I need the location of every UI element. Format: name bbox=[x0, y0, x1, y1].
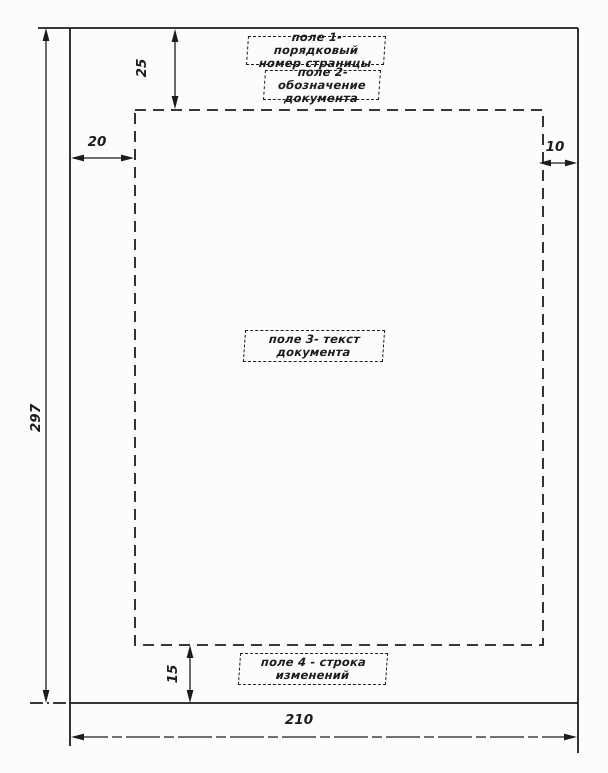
arrow-left-icon bbox=[71, 155, 84, 162]
field-label-line: документа bbox=[276, 346, 351, 359]
arrow-left-icon bbox=[539, 160, 551, 167]
arrow-right-icon bbox=[121, 155, 134, 162]
text-area-dashed-border bbox=[135, 110, 543, 645]
arrow-down-icon bbox=[172, 96, 179, 109]
dim-label-top-margin: 25 bbox=[134, 46, 150, 90]
arrow-down-icon bbox=[187, 690, 194, 703]
field-box-document-designation: поле 2-обозначение документа bbox=[263, 70, 381, 100]
arrow-up-icon bbox=[172, 29, 179, 42]
dim-line-right-margin bbox=[539, 160, 577, 167]
scanned-drawing-page: поле 1- порядковый номер страницы поле 2… bbox=[0, 0, 608, 773]
dim-label-sheet-height: 297 bbox=[28, 396, 44, 440]
dim-line-sheet-width bbox=[71, 734, 577, 741]
field-label-line: поле 1- порядковый bbox=[251, 31, 383, 57]
arrow-right-icon bbox=[564, 734, 577, 741]
dim-label-sheet-width: 210 bbox=[277, 712, 321, 728]
field-box-document-text: поле 3- текст документа bbox=[243, 330, 385, 362]
field-label-line: изменений bbox=[275, 669, 349, 682]
dim-label-right-margin: 10 bbox=[533, 139, 577, 155]
arrow-left-icon bbox=[71, 734, 84, 741]
dim-label-bottom-margin: 15 bbox=[165, 652, 181, 696]
dim-label-left-margin: 20 bbox=[75, 134, 119, 150]
dim-line-sheet-height bbox=[43, 28, 50, 703]
field-box-page-number: поле 1- порядковый номер страницы bbox=[246, 36, 386, 65]
field-box-change-line: поле 4 - строка изменений bbox=[238, 653, 388, 685]
dim-line-bottom-margin bbox=[187, 645, 194, 703]
field-label-line: поле 2-обозначение bbox=[268, 66, 378, 92]
arrow-up-icon bbox=[187, 645, 194, 658]
arrow-right-icon bbox=[565, 160, 577, 167]
dim-line-left-margin bbox=[71, 155, 134, 162]
arrow-down-icon bbox=[43, 690, 50, 703]
arrow-up-icon bbox=[43, 28, 50, 41]
dim-line-top-margin bbox=[172, 29, 179, 109]
field-label-line: документа bbox=[284, 92, 359, 105]
